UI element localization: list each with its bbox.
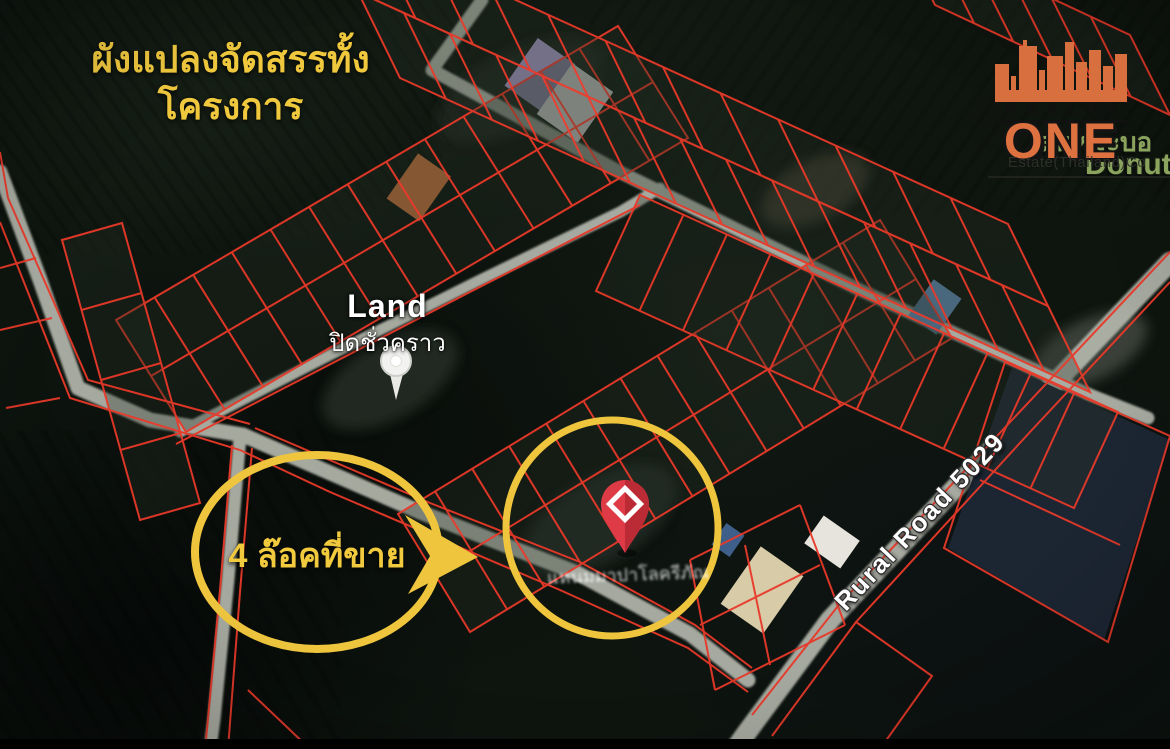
bottom-letterbox [0, 739, 1170, 749]
satellite-map-screenshot: ผังแปลงจัดสรรทั้ง โครงการ Land ปิดชั่วคร… [0, 0, 1170, 749]
tan-roof-building [721, 546, 804, 633]
land-place-label: Land ปิดชั่วคราว [295, 288, 480, 362]
land-place-status: ปิดชั่วคราว [295, 323, 480, 362]
title-annotation: ผังแปลงจัดสรรทั้ง โครงการ [58, 36, 403, 131]
white-roof-building-small [804, 515, 860, 568]
land-place-name: Land [295, 288, 480, 325]
logo-subtitle: Estate(Thailand)Co [992, 154, 1162, 171]
title-line1: ผังแปลงจัดสรรทั้ง [58, 36, 403, 83]
logo-subtitle-rule [988, 176, 1170, 178]
title-line2: โครงการ [58, 83, 403, 130]
callout-text: 4 ล๊อคที่ขาย [198, 528, 436, 582]
city-skyline-icon [995, 38, 1127, 102]
